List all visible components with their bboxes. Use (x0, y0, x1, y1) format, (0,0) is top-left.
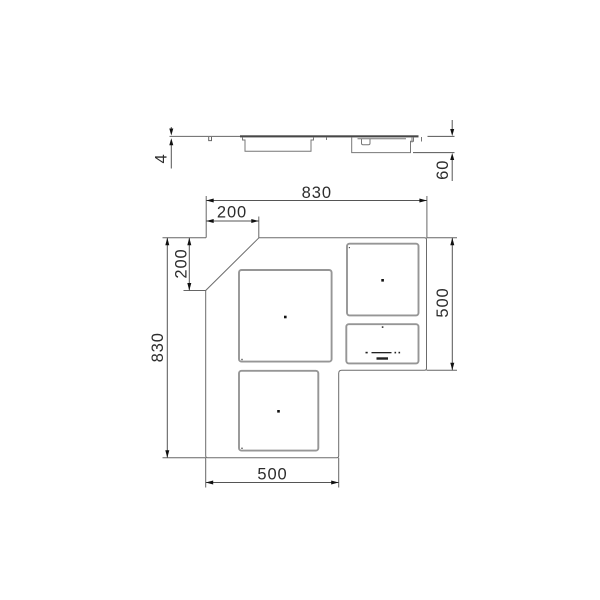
svg-text:60: 60 (434, 160, 452, 180)
svg-text:830: 830 (302, 184, 332, 202)
svg-text:200: 200 (173, 248, 191, 278)
svg-text:200: 200 (217, 204, 247, 222)
svg-text:500: 500 (434, 287, 452, 317)
svg-text:830: 830 (149, 332, 167, 362)
svg-text:4: 4 (153, 153, 171, 163)
svg-text:500: 500 (257, 466, 287, 484)
